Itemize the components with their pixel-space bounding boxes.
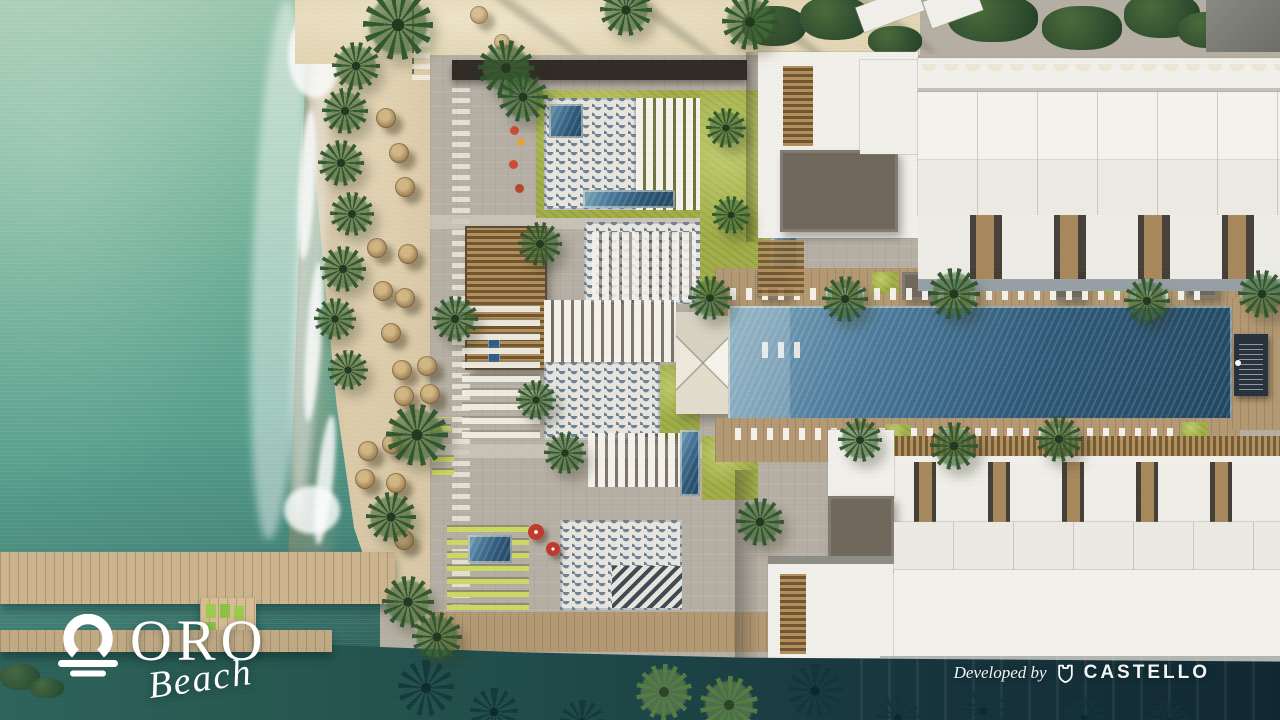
red-parasol-dot — [509, 160, 518, 169]
building-face — [918, 160, 1280, 215]
palm-tree — [1124, 278, 1170, 324]
palm-tree — [318, 140, 364, 186]
thatch-umbrella — [358, 441, 378, 461]
roof-louver-panel — [780, 574, 806, 654]
pergola-roof — [544, 300, 676, 362]
tree-canopy — [1042, 6, 1122, 50]
thatch-umbrella — [381, 323, 401, 343]
palm-tree — [332, 42, 380, 90]
screen-speaker-dot — [1235, 360, 1241, 366]
waterside-palm — [636, 664, 692, 720]
palm-tree — [320, 246, 366, 292]
lap-pool — [583, 190, 675, 208]
palm-tree — [928, 268, 980, 320]
thatch-umbrella — [367, 238, 387, 258]
pergola-roof — [588, 433, 680, 487]
thatch-umbrella — [470, 6, 488, 24]
palm-tree — [688, 276, 732, 320]
developer-name: CASTELLO — [1084, 662, 1210, 684]
pool-tanning-shelf — [728, 306, 790, 420]
balcony-row — [918, 215, 1280, 279]
thatch-umbrella — [394, 386, 414, 406]
palm-tree — [412, 612, 462, 662]
palm-tree — [1036, 416, 1082, 462]
thatch-umbrella — [392, 360, 412, 380]
palm-tree — [1238, 270, 1280, 318]
palm-tree — [386, 404, 448, 466]
red-parasol-dot — [515, 184, 524, 193]
palm-tree — [706, 108, 746, 148]
palm-tree — [516, 380, 556, 420]
outdoor-screen-frame — [1234, 334, 1268, 396]
thatch-umbrella — [376, 108, 396, 128]
aerial-resort-render: ORO Beach Developed by CASTELLO — [0, 0, 1280, 720]
thatch-umbrella — [389, 143, 409, 163]
palm-silhouette — [398, 660, 454, 716]
thatch-umbrella — [395, 288, 415, 308]
palm-tree — [366, 492, 416, 542]
palm-tree — [328, 350, 368, 390]
palm-tree — [322, 88, 368, 134]
thatch-umbrella — [395, 177, 415, 197]
palm-tree — [736, 498, 784, 546]
palm-tree — [314, 298, 356, 340]
building-face — [894, 522, 1280, 572]
thatch-umbrella — [420, 384, 440, 404]
wave-mosaic-deck — [544, 362, 660, 440]
building-wing-roof — [860, 60, 918, 154]
palm-tree — [822, 276, 868, 322]
red-parasol-dot — [510, 126, 519, 135]
red-umbrella — [546, 542, 560, 556]
white-canopy-tent — [676, 312, 730, 414]
castello-shield-icon — [1056, 662, 1075, 685]
plunge-pool — [468, 535, 512, 563]
penthouse-roof — [780, 150, 898, 232]
dining-pergola-roof — [592, 232, 696, 300]
palm-tree — [432, 296, 478, 342]
terrace-louvers — [758, 240, 804, 296]
palm-tree — [838, 418, 882, 462]
yellow-parasol-dot — [517, 138, 525, 146]
palm-tree — [498, 72, 548, 122]
palm-tree — [330, 192, 374, 236]
palm-tree — [544, 432, 586, 474]
thatch-umbrella — [386, 473, 406, 493]
roof-louver-panel — [783, 66, 813, 146]
developer-credit: Developed by CASTELLO — [954, 658, 1210, 688]
scalloped-roof-edge — [918, 64, 1280, 76]
thatch-umbrella — [373, 281, 393, 301]
in-pool-loungers — [762, 342, 804, 358]
wooden-pier — [0, 552, 395, 604]
palm-tree — [518, 222, 562, 266]
outdoor-screen-panel — [1239, 340, 1263, 390]
lap-pool — [680, 430, 700, 496]
neighbor-hip-roof — [1206, 0, 1280, 52]
building-face — [918, 92, 1280, 160]
palm-tree — [930, 422, 978, 470]
main-pool — [728, 306, 1232, 420]
oro-sun-waves-icon — [56, 614, 120, 680]
thatch-umbrella — [355, 469, 375, 489]
plunge-pool — [549, 104, 583, 138]
palm-tree — [712, 196, 750, 234]
chevron-deck — [612, 566, 682, 608]
oro-beach-logo: ORO Beach — [56, 610, 306, 715]
red-umbrella — [528, 524, 544, 540]
palm-silhouette — [788, 664, 842, 718]
developed-by-label: Developed by — [954, 663, 1047, 683]
thatch-umbrella — [398, 244, 418, 264]
thatch-umbrella — [417, 356, 437, 376]
